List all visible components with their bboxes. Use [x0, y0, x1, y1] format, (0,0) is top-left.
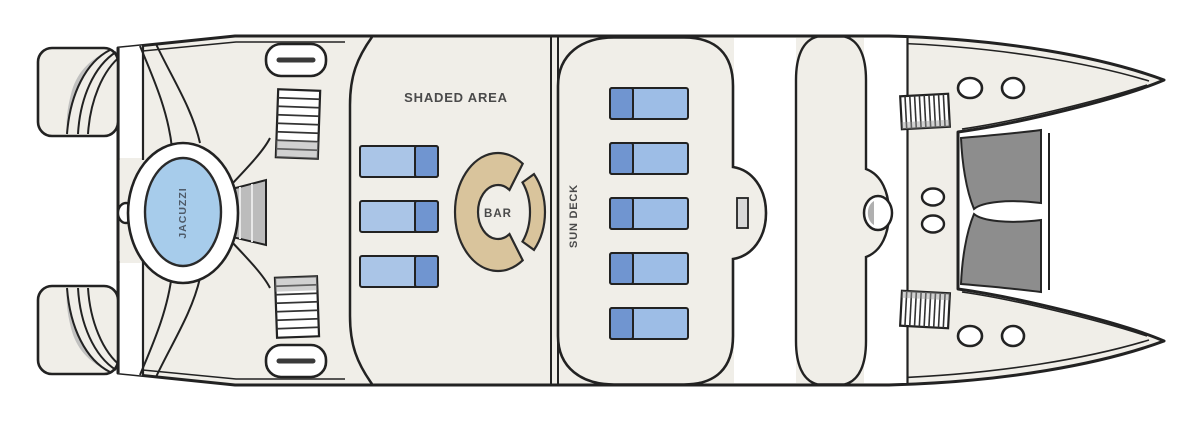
- grating-shadow: [275, 276, 317, 291]
- lounger: [610, 143, 688, 174]
- lounger: [360, 256, 438, 287]
- walkway-bottom: [118, 263, 143, 376]
- transom-cleat: [922, 216, 944, 233]
- deck-plan-stage: SUN DECK: [0, 0, 1200, 421]
- bow-hatch: [1002, 326, 1024, 346]
- stair-grating-top-right: [900, 94, 950, 129]
- bow-hatch: [958, 78, 982, 98]
- shaded-area-label: SHADED AREA: [404, 90, 508, 105]
- lounger: [610, 253, 688, 284]
- sun-deck-step: [737, 198, 748, 228]
- shaded-area-loungers: [360, 146, 438, 287]
- bow-hatch: [958, 326, 982, 346]
- stern-platform-bottom: [38, 286, 122, 374]
- stair-grating-top-left: [276, 89, 320, 158]
- deck-plan-diagram: SUN DECK: [0, 0, 1200, 421]
- jacuzzi-label: JACUZZI: [177, 187, 189, 238]
- grating-shadow: [276, 140, 319, 158]
- stair-grating-bottom-right: [900, 291, 950, 328]
- net-top: [961, 130, 1041, 209]
- bar-label: BAR: [484, 208, 512, 220]
- lounger: [360, 146, 438, 177]
- deck-hatch-bottom: [266, 345, 326, 377]
- lounger: [610, 308, 688, 339]
- lounger: [610, 198, 688, 229]
- walkway-top: [118, 46, 143, 159]
- stair-grating-bottom-left: [275, 276, 319, 337]
- stern-platform-top: [38, 48, 122, 136]
- deck-hatch-top: [266, 44, 326, 76]
- sun-deck-label: SUN DECK: [568, 184, 580, 248]
- lounger: [610, 88, 688, 119]
- net-bottom: [961, 214, 1041, 292]
- bow-hatch: [1002, 78, 1024, 98]
- lounger: [360, 201, 438, 232]
- transom-cleat: [922, 189, 944, 206]
